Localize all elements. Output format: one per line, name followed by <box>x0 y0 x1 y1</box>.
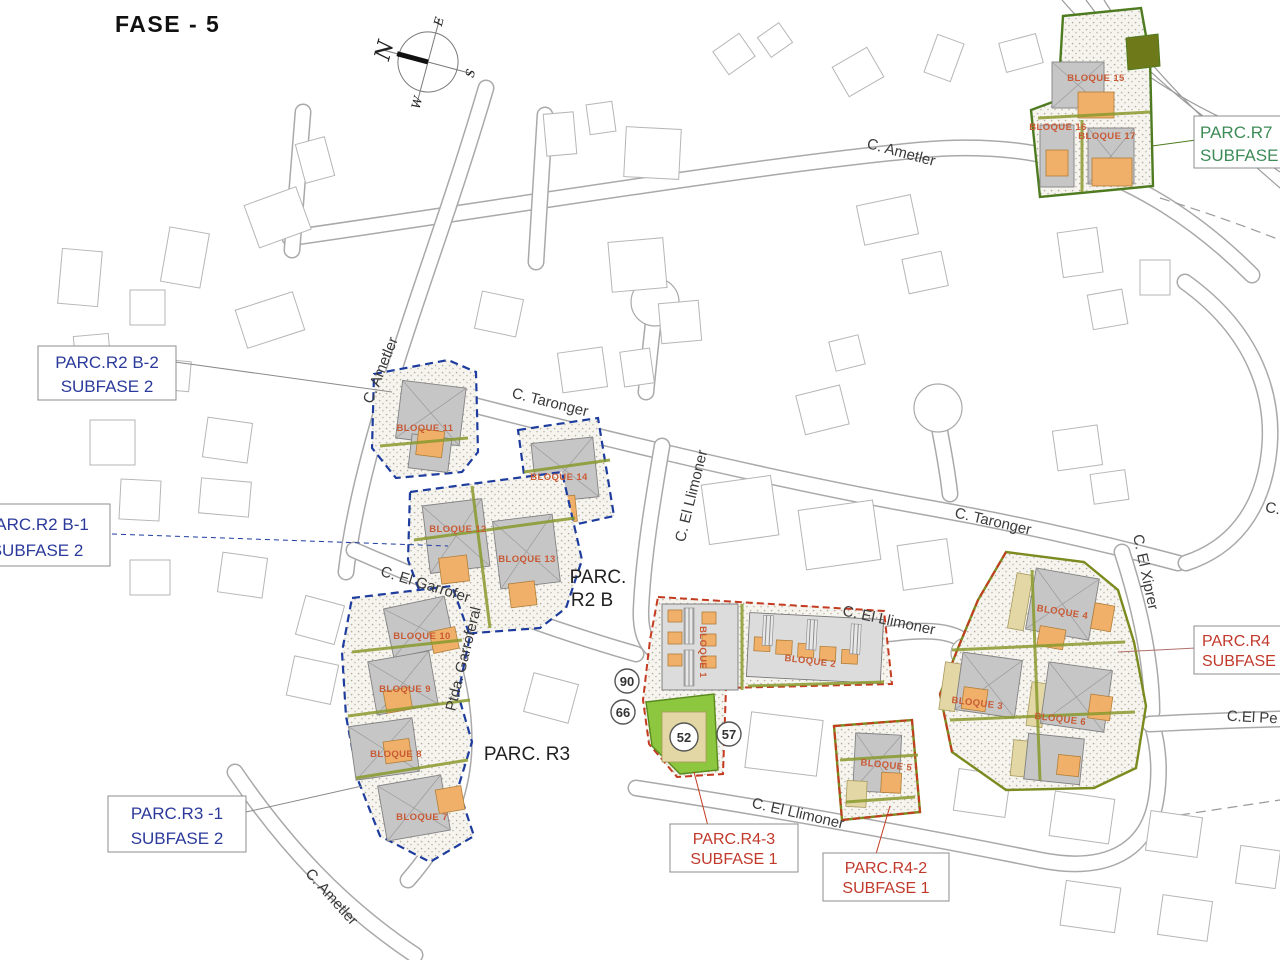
bloque-label: BLOQUE 13 <box>498 554 555 565</box>
bloque-label: BLOQUE 12 <box>429 524 486 535</box>
bloque-label: BLOQUE 11 <box>397 423 454 434</box>
label-parc-r4: PARC.R4 SUBFASE <box>1194 626 1280 674</box>
street-label: C. <box>1264 499 1280 518</box>
bloque-label: BLOQUE 10 <box>393 631 450 642</box>
street-label: C. Taronger <box>953 505 1033 539</box>
compass-n: N <box>370 37 400 64</box>
building-footprint <box>1046 150 1068 176</box>
parcel-r4 <box>939 552 1146 790</box>
parcel-label-line2: SUBFASE 2 <box>131 829 224 848</box>
green-zone <box>1126 34 1160 70</box>
bloque-label: BLOQUE 17 <box>1078 131 1135 142</box>
marker-value: 57 <box>722 727 736 742</box>
label-parc-r4-3: PARC.R4-3 SUBFASE 1 <box>670 824 798 872</box>
road-right-curve <box>1185 282 1270 563</box>
parcel-label-line2: SUBFASE <box>1202 653 1276 670</box>
parcel-label-line1: PARC.R2 B-2 <box>55 353 159 372</box>
parcel-label-line1: PARC.R4-3 <box>693 831 775 848</box>
compass-w: W <box>409 93 426 110</box>
parcel-label-line1: PARC.R3 -1 <box>131 804 223 823</box>
parcel-label-line2: SUBFASE 2 <box>61 377 154 396</box>
parcel-label-line2: SUBFASE 2 <box>0 541 83 560</box>
parcel-label-line1: PARC.R7 <box>1200 123 1272 142</box>
site-plan: PARC.R2 B-2 SUBFASE 2 PARC.R2 B-1 SUBFAS… <box>0 0 1280 960</box>
parcel-label-line1: PARC.R2 B-1 <box>0 515 89 534</box>
bloque-label: BLOQUE 14 <box>530 472 588 483</box>
label-parc-r4-2: PARC.R4-2 SUBFASE 1 <box>823 853 949 901</box>
area-label-r3: PARC. R3 <box>484 744 570 765</box>
label-parc-r7: PARC.R7 SUBFASE <box>1194 116 1280 168</box>
plan-canvas: PARC.R2 B-2 SUBFASE 2 PARC.R2 B-1 SUBFAS… <box>0 0 1280 960</box>
bloque-label: BLOQUE 9 <box>379 684 431 695</box>
label-parc-r2b2: PARC.R2 B-2 SUBFASE 2 <box>38 346 176 400</box>
marker-value: 52 <box>677 730 691 745</box>
area-label-r2b-line2: R2 B <box>571 590 613 611</box>
building-footprint <box>1092 158 1132 186</box>
page-title: FASE - 5 <box>115 11 220 37</box>
building-footprint <box>439 555 470 584</box>
compass-e: E <box>431 15 447 28</box>
bloque-label: BLOQUE 15 <box>1067 73 1125 84</box>
bloque-label: BLOQUE 8 <box>370 749 422 760</box>
building-footprint <box>435 786 465 814</box>
cul-de-sac <box>914 384 962 432</box>
street-label: C. Ametler <box>865 135 937 170</box>
bloque-label: BLOQUE 1 <box>697 626 708 678</box>
parcel-r7 <box>1031 8 1160 197</box>
compass-rose: N E S W <box>360 2 489 122</box>
compass-needle <box>396 51 428 64</box>
parcel-label-line2: SUBFASE 1 <box>690 851 777 868</box>
marker-value: 66 <box>616 705 630 720</box>
parcel-label-line1: PARC.R4-2 <box>845 860 927 877</box>
parcel-label-line2: SUBFASE 1 <box>842 880 929 897</box>
compass-s: S <box>463 68 479 80</box>
bloque-label: BLOQUE 7 <box>396 812 448 823</box>
area-label-r2b-line1: PARC. <box>570 567 627 588</box>
marker-value: 90 <box>620 674 634 689</box>
parcel-label-line1: PARC.R4 <box>1202 633 1270 650</box>
parcel-label-line2: SUBFASE <box>1200 146 1278 165</box>
street-label: C.El Pe <box>1226 708 1278 728</box>
building-footprint <box>508 581 537 608</box>
label-parc-r2b1: PARC.R2 B-1 SUBFASE 2 <box>0 504 110 566</box>
label-parc-r3-1: PARC.R3 -1 SUBFASE 2 <box>108 796 246 852</box>
